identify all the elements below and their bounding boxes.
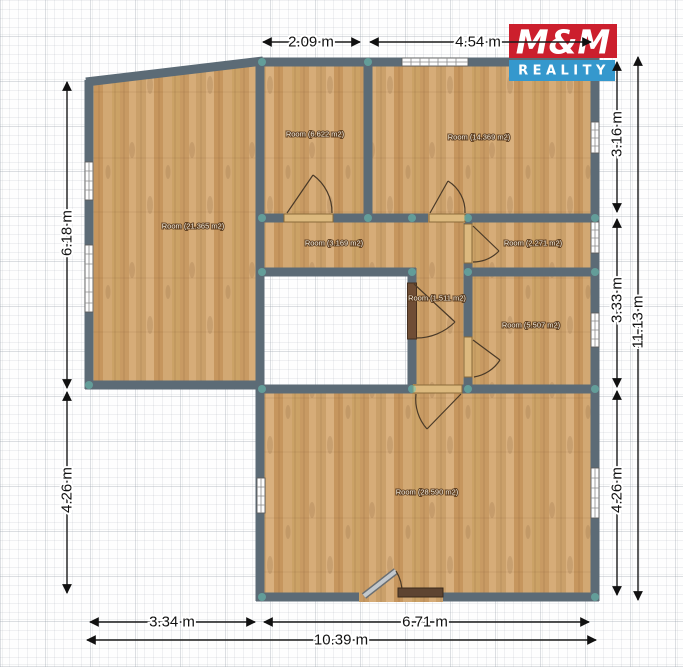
dim-right-3: 4.26 m (609, 467, 626, 513)
room-label-21-365: Room (21.365 m2) (162, 222, 225, 231)
dim-right-2: 3.33 m (609, 277, 626, 323)
floorplan-svg: Room (21.365 m2) Room (6.622 m2) Room (1… (0, 0, 683, 667)
dim-left-2: 4.26 m (59, 467, 76, 513)
room-label-1-511: Room (1.511 m2) (408, 294, 466, 303)
window-right-1 (591, 122, 599, 153)
window-left-2 (85, 245, 93, 312)
window-right-3 (591, 313, 599, 347)
dim-bottom-1: 3.34 m (149, 614, 195, 631)
window-right-4 (591, 468, 599, 518)
floor-mid-right (408, 218, 595, 393)
dim-right-total: 11.13 m (630, 295, 647, 348)
dim-bottom-2: 6.71 m (402, 614, 448, 631)
room-label-14-369: Room (14.369 m2) (448, 133, 511, 142)
mm-reality-logo: M&M REALITY (509, 23, 617, 82)
dim-top-2: 4.54 m (455, 34, 501, 51)
window-left-1 (85, 162, 93, 200)
room-label-28-590: Room (28.590 m2) (396, 488, 459, 497)
dim-left-1: 6.18 m (59, 210, 76, 256)
logo-subtitle: REALITY (518, 64, 610, 79)
room-label-3-169: Room (3.169 m2) (305, 239, 364, 248)
room-label-2-271: Room (2.271 m2) (504, 239, 563, 248)
dim-right-1: 3.16 m (609, 111, 626, 157)
entrance-door-leaf (398, 588, 443, 597)
room-label-6-622: Room (6.622 m2) (286, 130, 345, 139)
room-label-5-507: Room (5.507 m2) (502, 321, 561, 330)
dim-bottom-total: 10.39 m (314, 632, 368, 649)
dim-top-1: 2.09 m (288, 34, 334, 51)
floor-top-rooms (260, 58, 595, 222)
window-top (402, 58, 468, 66)
window-bottomroom-left (257, 478, 265, 513)
window-right-2 (591, 222, 599, 253)
floorplan-canvas: Room (21.365 m2) Room (6.622 m2) Room (1… (0, 0, 683, 667)
